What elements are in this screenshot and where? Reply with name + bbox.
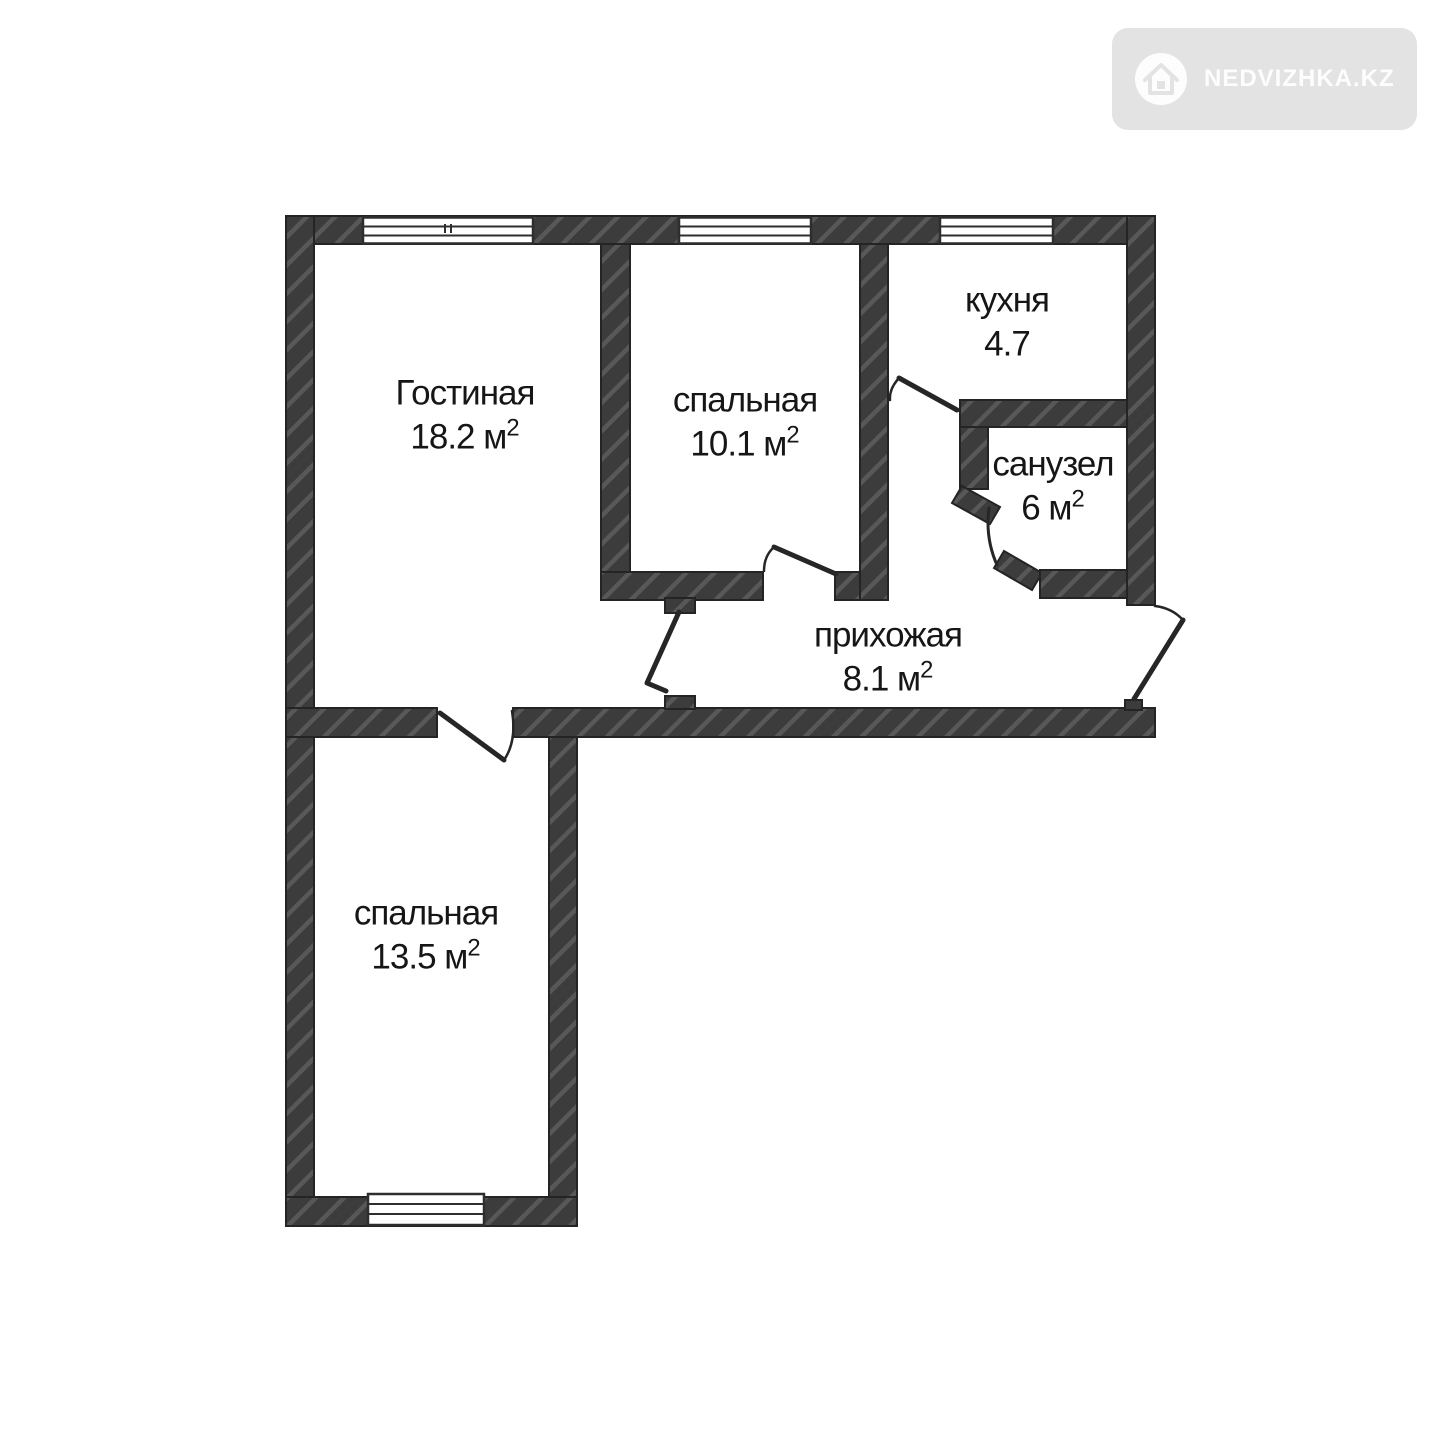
door-entrance: [1134, 606, 1183, 699]
room-label-hallway: прихожая 8.1 м2: [814, 618, 962, 697]
wall-living-bedroom-divider: [601, 244, 630, 600]
room-area: 13.5 м2: [354, 931, 498, 975]
door-kitchen: [890, 378, 957, 410]
room-name: прихожая: [814, 616, 962, 655]
window-bedroom-bottom: [368, 1194, 484, 1225]
door-bedroom-bottom: [440, 711, 513, 760]
wall-bedroom-kitchen-divider: [860, 244, 888, 600]
door-bedroom-top: [764, 547, 836, 574]
room-label-kitchen: кухня 4.7: [965, 283, 1049, 362]
room-label-bedroom-bottom: спальная 13.5 м2: [354, 896, 498, 975]
wall-hall-bottom-left: [286, 708, 437, 737]
window-living: [363, 218, 533, 244]
wall-bathroom-angle-bottom: [994, 551, 1042, 590]
wall-bedroom-bottom-right: [549, 737, 577, 1225]
wall-hall-bottom-right: [513, 708, 1155, 737]
room-name: спальная: [673, 381, 817, 420]
window-bedroom-top: [679, 218, 811, 244]
floorplan-drawing: [0, 0, 1440, 1440]
room-label-living: Гостиная 18.2 м2: [396, 376, 535, 455]
room-area: 18.2 м2: [396, 411, 535, 455]
door-pivot-block-bottom: [665, 696, 695, 709]
floorplan-page: NEDVIZHKA.KZ: [0, 0, 1440, 1440]
wall-right-upper: [1127, 216, 1155, 605]
room-name: кухня: [965, 281, 1049, 320]
door-living-hall: [647, 612, 679, 691]
wall-bedroom-top-bottom-left: [601, 572, 763, 600]
room-name: спальная: [354, 894, 498, 933]
room-label-bedroom-top: спальная 10.1 м2: [673, 383, 817, 462]
walls: [286, 216, 1155, 1226]
room-area: 4.7: [965, 318, 1049, 362]
room-area: 10.1 м2: [673, 418, 817, 462]
wall-bathroom-left: [960, 427, 988, 489]
room-label-bathroom: санузел 6 м2: [992, 447, 1113, 526]
wall-kitchen-bottom: [960, 400, 1127, 427]
wall-bathroom-bottom: [1040, 570, 1127, 598]
room-name: санузел: [992, 445, 1113, 484]
window-kitchen: [940, 218, 1053, 244]
door-pivot-block-entrance: [1125, 700, 1142, 710]
room-area: 6 м2: [992, 482, 1113, 526]
room-name: Гостиная: [396, 374, 535, 413]
room-area: 8.1 м2: [814, 653, 962, 697]
